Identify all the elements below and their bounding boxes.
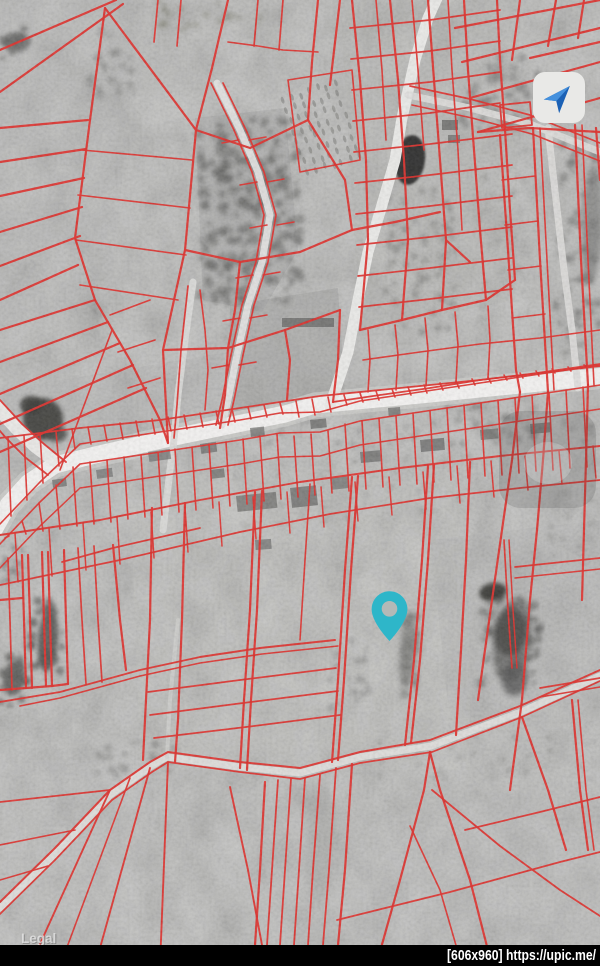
svg-text:[606x960] https://upic.me/: [606x960] https://upic.me/ xyxy=(447,947,597,964)
svg-text:Legal: Legal xyxy=(21,931,56,946)
